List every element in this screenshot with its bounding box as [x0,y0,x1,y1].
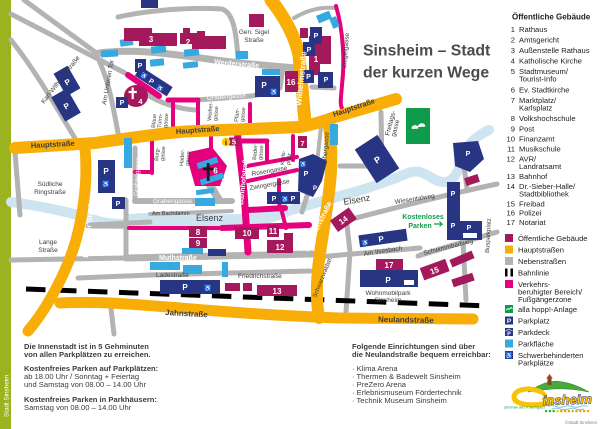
svg-text:Kostenloses: Kostenloses [402,214,444,221]
svg-text:Karlsplatz: Karlsplatz [519,104,553,113]
svg-text:5: 5 [232,138,236,147]
svg-text:14: 14 [507,182,515,191]
svg-text:16: 16 [507,209,515,218]
svg-text:13: 13 [507,172,515,181]
svg-text:Landratsamt: Landratsamt [519,162,562,171]
svg-text:Musikschule: Musikschule [519,145,561,154]
svg-text:Außenstelle Rathaus: Außenstelle Rathaus [519,46,590,55]
svg-text:platz: platz [286,153,293,165]
svg-text:Sinsheim – Stadt: Sinsheim – Stadt [363,43,491,60]
svg-text:und Samstag von 08.00 – 14.00: und Samstag von 08.00 – 14.00 Uhr [24,380,146,389]
svg-text:10: 10 [507,135,515,144]
svg-text:P: P [313,186,317,192]
svg-text:Parkfläche: Parkfläche [518,340,554,349]
svg-text:P: P [467,225,472,232]
svg-text:4: 4 [511,57,515,66]
svg-text:Parken: Parken [408,223,431,230]
svg-text:2: 2 [186,38,191,47]
svg-text:gasse: gasse [163,113,170,128]
svg-text:Elsenz: Elsenz [196,213,224,223]
svg-text:der kurzen Wege: der kurzen Wege [363,65,489,82]
svg-text:15: 15 [507,200,515,209]
svg-text:alla hopp!-Anlage: alla hopp!-Anlage [518,305,577,314]
svg-text:1: 1 [511,25,515,34]
svg-text:Finanzamt: Finanzamt [519,135,555,144]
svg-text:13: 13 [273,287,282,296]
svg-text:Grabengasse: Grabengasse [153,198,192,205]
svg-text:Rathaus: Rathaus [519,25,547,34]
svg-text:7: 7 [300,139,304,148]
svg-text:8: 8 [196,228,201,237]
svg-text:Straße: Straße [244,37,264,44]
svg-text:8: 8 [511,114,515,123]
svg-text:17: 17 [507,218,515,227]
svg-text:Katholische Kirche: Katholische Kirche [519,57,582,66]
svg-text:11: 11 [269,227,278,236]
svg-text:Ringstraße: Ringstraße [34,189,66,196]
svg-text:11: 11 [507,145,515,154]
svg-text:Lange: Lange [39,239,57,246]
svg-text:Gen. Sigel: Gen. Sigel [239,29,270,36]
svg-text:Stadtbibliothek: Stadtbibliothek [519,190,569,199]
svg-text:P: P [261,81,267,90]
svg-text:Öffentliche Gebäude: Öffentliche Gebäude [518,234,588,243]
svg-text:6: 6 [511,86,515,95]
svg-text:5: 5 [511,67,515,76]
svg-text:Samstag von 08.00 – 14.00 Uhr: Samstag von 08.00 – 14.00 Uhr [24,403,132,412]
svg-text:♿: ♿ [204,284,212,292]
svg-text:P: P [116,201,121,208]
svg-text:von allen Parkplätzen zu errei: von allen Parkplätzen zu erreichen. [24,350,151,359]
svg-text:P: P [314,33,319,40]
svg-text:i: i [225,140,227,147]
svg-text:Stadt Sinsheim: Stadt Sinsheim [4,375,11,417]
svg-text:12: 12 [276,243,285,252]
svg-text:Fußgängerzone: Fußgängerzone [518,295,572,304]
svg-text:die Neulandstraße bequem errei: die Neulandstraße bequem erreichbar: [352,350,491,359]
svg-text:Notariat: Notariat [519,218,546,227]
svg-text:P: P [507,318,512,325]
svg-text:7: 7 [511,96,515,105]
svg-text:P: P [385,276,391,285]
svg-text:P: P [451,191,456,198]
svg-text:P: P [306,74,311,81]
svg-text:Parkplatz: Parkplatz [518,317,550,326]
svg-text:gasse: gasse [258,145,265,160]
svg-text:Muthstraße: Muthstraße [159,255,197,262]
svg-text:Friedrichstraße: Friedrichstraße [238,273,282,280]
svg-text:gasse: gasse [240,107,247,122]
svg-text:2: 2 [511,36,515,45]
svg-text:Südliche: Südliche [38,181,63,188]
svg-text:♿: ♿ [282,196,289,203]
svg-text:Bahnlinie: Bahnlinie [518,269,549,278]
svg-text:gasse: gasse [160,146,167,161]
svg-text:12: 12 [507,155,515,164]
svg-text:9: 9 [196,239,201,248]
svg-text:Polizei: Polizei [519,209,542,218]
svg-text:Ladestraße: Ladestraße [156,272,189,279]
svg-text:Ev. Stadtkirche: Ev. Stadtkirche [519,86,570,95]
svg-text:Parkplätze: Parkplätze [518,359,554,368]
svg-text:P: P [272,196,277,203]
svg-text:Volkshochschule: Volkshochschule [519,114,576,123]
svg-text:Sinsheim: Sinsheim [375,297,402,304]
svg-text:9: 9 [511,125,515,134]
svg-text:· Technik Museum Sinsheim: · Technik Museum Sinsheim [352,396,447,405]
svg-text:Post: Post [519,125,535,134]
svg-text:1: 1 [314,55,319,64]
svg-text:Bahnhof: Bahnhof [519,172,548,181]
svg-text:Am Bachdamm: Am Bachdamm [152,211,190,217]
svg-text:♿: ♿ [362,239,370,247]
svg-text:Neulandstraße: Neulandstraße [378,315,434,325]
svg-text:3: 3 [149,35,154,44]
svg-text:♿: ♿ [270,88,278,96]
svg-text:10: 10 [243,229,252,238]
svg-text:♿: ♿ [300,161,307,168]
svg-text:♿: ♿ [102,180,110,188]
svg-text:Hauptstraßen: Hauptstraßen [518,246,564,255]
svg-text:Nebenstraßen: Nebenstraßen [518,257,566,266]
svg-text:Öffentliche Gebäude: Öffentliche Gebäude [512,13,591,22]
svg-text:Straße: Straße [38,247,58,254]
svg-text:P: P [120,100,125,107]
svg-text:Zentrale des Kraichgaus: Zentrale des Kraichgaus [503,406,545,410]
svg-text:P: P [103,167,109,176]
svg-text:P: P [466,151,471,158]
svg-text:17: 17 [385,261,394,270]
svg-text:16: 16 [287,78,296,87]
svg-text:Wohnmobilpark: Wohnmobilpark [365,290,411,297]
svg-text:Freibad: Freibad [519,200,545,209]
svg-text:P: P [324,77,329,84]
svg-text:Parkdeck: Parkdeck [518,328,550,337]
svg-text:gasse: gasse [185,151,192,166]
svg-text:P: P [182,283,188,292]
svg-text:P: P [304,171,309,178]
svg-text:6: 6 [213,167,218,176]
svg-text:gasse: gasse [213,106,220,121]
svg-text:3: 3 [511,46,515,55]
svg-text:P: P [291,196,296,203]
svg-text:♿: ♿ [505,352,513,360]
svg-text:P: P [451,223,456,230]
svg-text:©Stadt Sinsheim: ©Stadt Sinsheim [565,420,597,425]
svg-text:P: P [507,332,511,338]
svg-text:Tourist-Info: Tourist-Info [519,75,557,84]
svg-text:Amtsgericht: Amtsgericht [519,36,560,45]
